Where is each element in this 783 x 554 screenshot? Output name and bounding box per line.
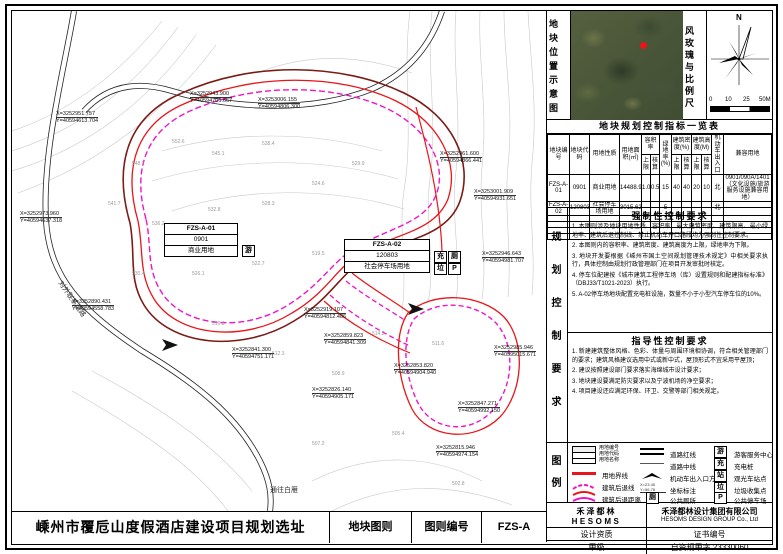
plot-land-code: 120803	[345, 251, 429, 262]
spot-elevation: 532.8	[208, 207, 221, 213]
coordinate-labels: X=3252943.900Y=40594706.667X=3252951.757…	[12, 11, 546, 511]
legend-label: 道路中线	[670, 461, 696, 471]
coordinate-label: X=3252859.823Y=40594841.309	[324, 333, 366, 346]
plot-label-box-a01: FZS-A-01 0901 商业用地	[164, 223, 238, 257]
plot-label-sample	[572, 446, 596, 464]
satellite-thumbnail	[571, 11, 683, 120]
spot-elevation: 511.6	[432, 341, 444, 347]
spot-elevation: 541.7	[108, 201, 121, 207]
subcol-upper: 上限	[642, 155, 651, 175]
firm-logo-cn: 禾泽都林	[547, 506, 646, 517]
requirement-item: 4. 项目建设还应满足环保、环卫、交警等部门相关规定。	[572, 388, 768, 397]
requirement-item: 1. 本图则涉及地块用地性质、容积率、最大建筑密度、建筑限高、最小绿地率、建筑后…	[572, 223, 768, 240]
coordinate-label: X=3252961.600Y=40594866.441	[440, 151, 482, 164]
tourist-center-icon: 游	[242, 245, 255, 257]
requirement-item: 4. 停车位配建按《城市建筑工程停车场（库）设置规则和配建指标标准》（DBJ33…	[572, 272, 768, 289]
toilet-icon: 厕	[448, 251, 461, 263]
coordinate-label: X=3253001.909Y=40594931.651	[474, 189, 516, 202]
spot-elevation: 505.4	[392, 431, 405, 437]
spot-elevation: 512.3	[272, 351, 285, 357]
requirement-item: 5. A-02停车场地块配置充电桩设施，数量不小于小型汽车停车位的10%。	[572, 291, 768, 300]
road-redline-swatch2	[640, 453, 664, 455]
road-redline-swatch	[640, 448, 664, 450]
guiding-requirements: 指导性控制要求 1. 新建建筑整体风格、色彩、体量与周围环境相协调，符合相关管理…	[568, 333, 772, 443]
project-title: 嵊州市覆卮山度假酒店建设项目规划选址	[12, 512, 330, 543]
plan-sheet: X=3252943.900Y=40594706.667X=3252951.757…	[0, 0, 783, 554]
guiding-title: 指导性控制要求	[568, 333, 772, 348]
location-map-title: 地块位置示意图	[547, 11, 571, 120]
setback-distance-swatch	[572, 491, 596, 503]
spot-elevation: 538.4	[262, 141, 275, 147]
spot-elevation: 508.9	[332, 371, 345, 377]
col-area: 用地面积(㎡)	[620, 135, 642, 175]
coordinate-label: X=3252943.900Y=40594706.667	[190, 91, 232, 104]
garbage-icon: 垃	[434, 263, 447, 275]
shuttle-stop-icon: 站	[714, 470, 727, 482]
subcol-check: 核算	[702, 155, 712, 175]
col-land-use: 用地性质	[590, 135, 620, 175]
spot-elevation: 548.2	[132, 161, 145, 167]
requirement-item: 3. 地块开发要根据《嵊州市国土空间规划管理技术规定》中相关要求执行，具体控制由…	[572, 253, 768, 270]
coordinate-label: X=3252951.757Y=40594613.704	[56, 111, 98, 124]
legend-label: 用地界线	[602, 470, 628, 480]
col-plot-code: 地块代码	[570, 135, 590, 175]
coordinate-label: X=3252973.960Y=40594637.318	[20, 211, 62, 224]
spot-elevation: 522.7	[252, 261, 265, 267]
legend-label: 垃圾收集点	[734, 485, 767, 495]
requirement-item: 3. 地块建设要满足防灾要求以及宁波机场的净空要求；	[572, 378, 768, 387]
road-label-south: 通往白雁	[270, 485, 298, 495]
parking-icon: P	[448, 263, 461, 275]
col-green: 绿地率(%)	[660, 135, 672, 175]
plot-land-code: 0901	[165, 235, 237, 246]
scale-tick-10: 10	[725, 97, 732, 103]
subcol-upper: 上限	[672, 155, 682, 175]
legend-label: 充电桩	[734, 461, 754, 471]
coordinate-label: X=3252946.643Y=40594981.707	[482, 251, 524, 264]
plot-code: FZS-A-02	[345, 240, 429, 251]
coordinate-label: X=3252853.820Y=40594904.940	[394, 363, 436, 376]
col-height: 建筑高度(M)	[692, 135, 712, 155]
spot-elevation: 536.2	[152, 221, 165, 227]
plot-label-box-a02: FZS-A-02 120803 社会停车场用地	[344, 239, 430, 273]
col-density: 建筑密度(%)	[672, 135, 692, 155]
firm-name: 禾泽都林设计集团有限公司 HESOMS DESIGN GROUP Co., Lt…	[647, 503, 772, 528]
col-compat: 兼容用地	[724, 135, 772, 175]
coordinate-label: X=3252985.946Y=40595015.671	[494, 345, 536, 358]
scale-bar	[710, 106, 770, 112]
requirement-item: 2. 本图则内的容积率、建筑密度、建筑高度为上限，绿地率为下限。	[572, 242, 768, 251]
certificate-value: 自资规甲字 23330060	[647, 541, 772, 554]
road-centerline-swatch	[640, 463, 664, 464]
spot-elevation: 507.2	[312, 441, 325, 447]
certificate-label: 证书编号	[647, 528, 772, 541]
subcol-check: 核算	[651, 155, 660, 175]
requirement-item: 2. 建议按照建设部门要求落实海绵城市设计要求；	[572, 367, 768, 376]
table-title: 地块规划控制指标一览表	[547, 120, 772, 134]
firm-logo-en: HESOMS	[547, 517, 646, 526]
subcol-check: 核算	[682, 155, 692, 175]
legend-title: 图例	[547, 443, 568, 503]
scale-tick-25: 25	[743, 97, 750, 103]
mandatory-title: 强制性控制要求	[568, 208, 772, 223]
windrose-title: 风玫瑰与比例尺	[683, 11, 707, 120]
spot-elevation: 552.6	[172, 139, 185, 145]
qualification-label: 设计资质	[547, 528, 647, 541]
spot-elevation: 530.4	[132, 271, 145, 277]
spot-elevation: 545.1	[212, 151, 225, 157]
tourist-center-icon: 游	[714, 446, 727, 458]
coordinate-label: X=3252919.107Y=40594812.486	[304, 307, 346, 320]
scale-tick-0: 0	[709, 97, 712, 103]
legend-label: 观光车站点	[734, 473, 767, 483]
legend-label: 坐标标注	[670, 485, 696, 495]
coordinate-label: X=3252841.300Y=40594751.171	[232, 347, 274, 360]
spot-elevation: 528.3	[262, 201, 275, 207]
spot-elevation: 529.9	[352, 161, 365, 167]
legend-label: 用地名称	[599, 457, 619, 463]
firm-name-cn: 禾泽都林设计集团有限公司	[647, 506, 772, 517]
plot-land-use: 社会停车场用地	[345, 262, 429, 272]
legend-label: 道路红线	[670, 449, 696, 459]
setback-line-swatch	[572, 479, 596, 491]
mandatory-requirements: 强制性控制要求 1. 本图则涉及地块用地性质、容积率、最大建筑密度、建筑限高、最…	[568, 208, 772, 333]
firm-name-en: HESOMS DESIGN GROUP Co., Ltd	[647, 517, 772, 523]
legend-label: 建筑后退线	[602, 482, 635, 492]
spot-elevation: 516.8	[212, 321, 225, 327]
plot-code: FZS-A-01	[165, 224, 237, 235]
right-panel: 地块位置示意图 风玫瑰与比例尺 N 0	[546, 11, 772, 542]
sheet-no-label: 图则编号	[412, 512, 482, 543]
sheet-type: 地块图则	[330, 512, 412, 543]
scale-tick-50: 50M	[759, 97, 771, 103]
coordinate-label: X=3252826.140Y=40594905.171	[312, 387, 354, 400]
spot-elevation: 526.1	[192, 271, 205, 277]
map-canvas: X=3252943.900Y=40594706.667X=3252951.757…	[12, 11, 546, 511]
legend-label: 游客服务中心	[734, 449, 773, 459]
spot-elevation: 502.8	[452, 481, 465, 487]
spot-elevation: 519.5	[312, 251, 325, 257]
wind-rose	[707, 21, 772, 89]
col-entrance: 机动车出入口	[712, 135, 724, 175]
col-plot-no: 地块编号	[548, 135, 570, 175]
coordinate-label: X=3253006.155Y=40594806.300	[258, 97, 300, 110]
firm-logo: 禾泽都林 HESOMS	[547, 503, 647, 528]
plot-land-use: 商业用地	[165, 246, 237, 256]
requirement-item: 1. 新建建筑整体风格、色彩、体量与周围环境相协调，符合相关管理部门的要求；建筑…	[572, 348, 768, 365]
boundary-line-swatch	[572, 472, 596, 475]
spot-elevation: 524.6	[312, 181, 325, 187]
charging-icon: 充	[434, 251, 447, 263]
spot-elevation: 514.2	[372, 331, 385, 337]
coordinate-label: X=3252815.946Y=40594974.154	[436, 445, 478, 458]
table-row: FZS-A-010901 商业用地14488.90 1.00.5 1540 40…	[548, 175, 772, 202]
requirements-side-label: 规划控制要求	[547, 208, 568, 443]
subcol-upper: 上限	[692, 155, 702, 175]
site-marker-dot	[640, 42, 647, 49]
qualification-value: 甲级	[547, 541, 647, 554]
col-far: 容积率	[642, 135, 660, 155]
coordinate-label: X=3252847.271Y=40594992.150	[458, 401, 500, 414]
sheet-no: FZS-A	[482, 512, 546, 543]
charging-icon: 充	[714, 458, 727, 470]
entrance-arrow-swatch	[640, 470, 664, 482]
title-bar: 嵊州市覆卮山度假酒店建设项目规划选址 地块图则 图则编号 FZS-A	[12, 511, 546, 542]
